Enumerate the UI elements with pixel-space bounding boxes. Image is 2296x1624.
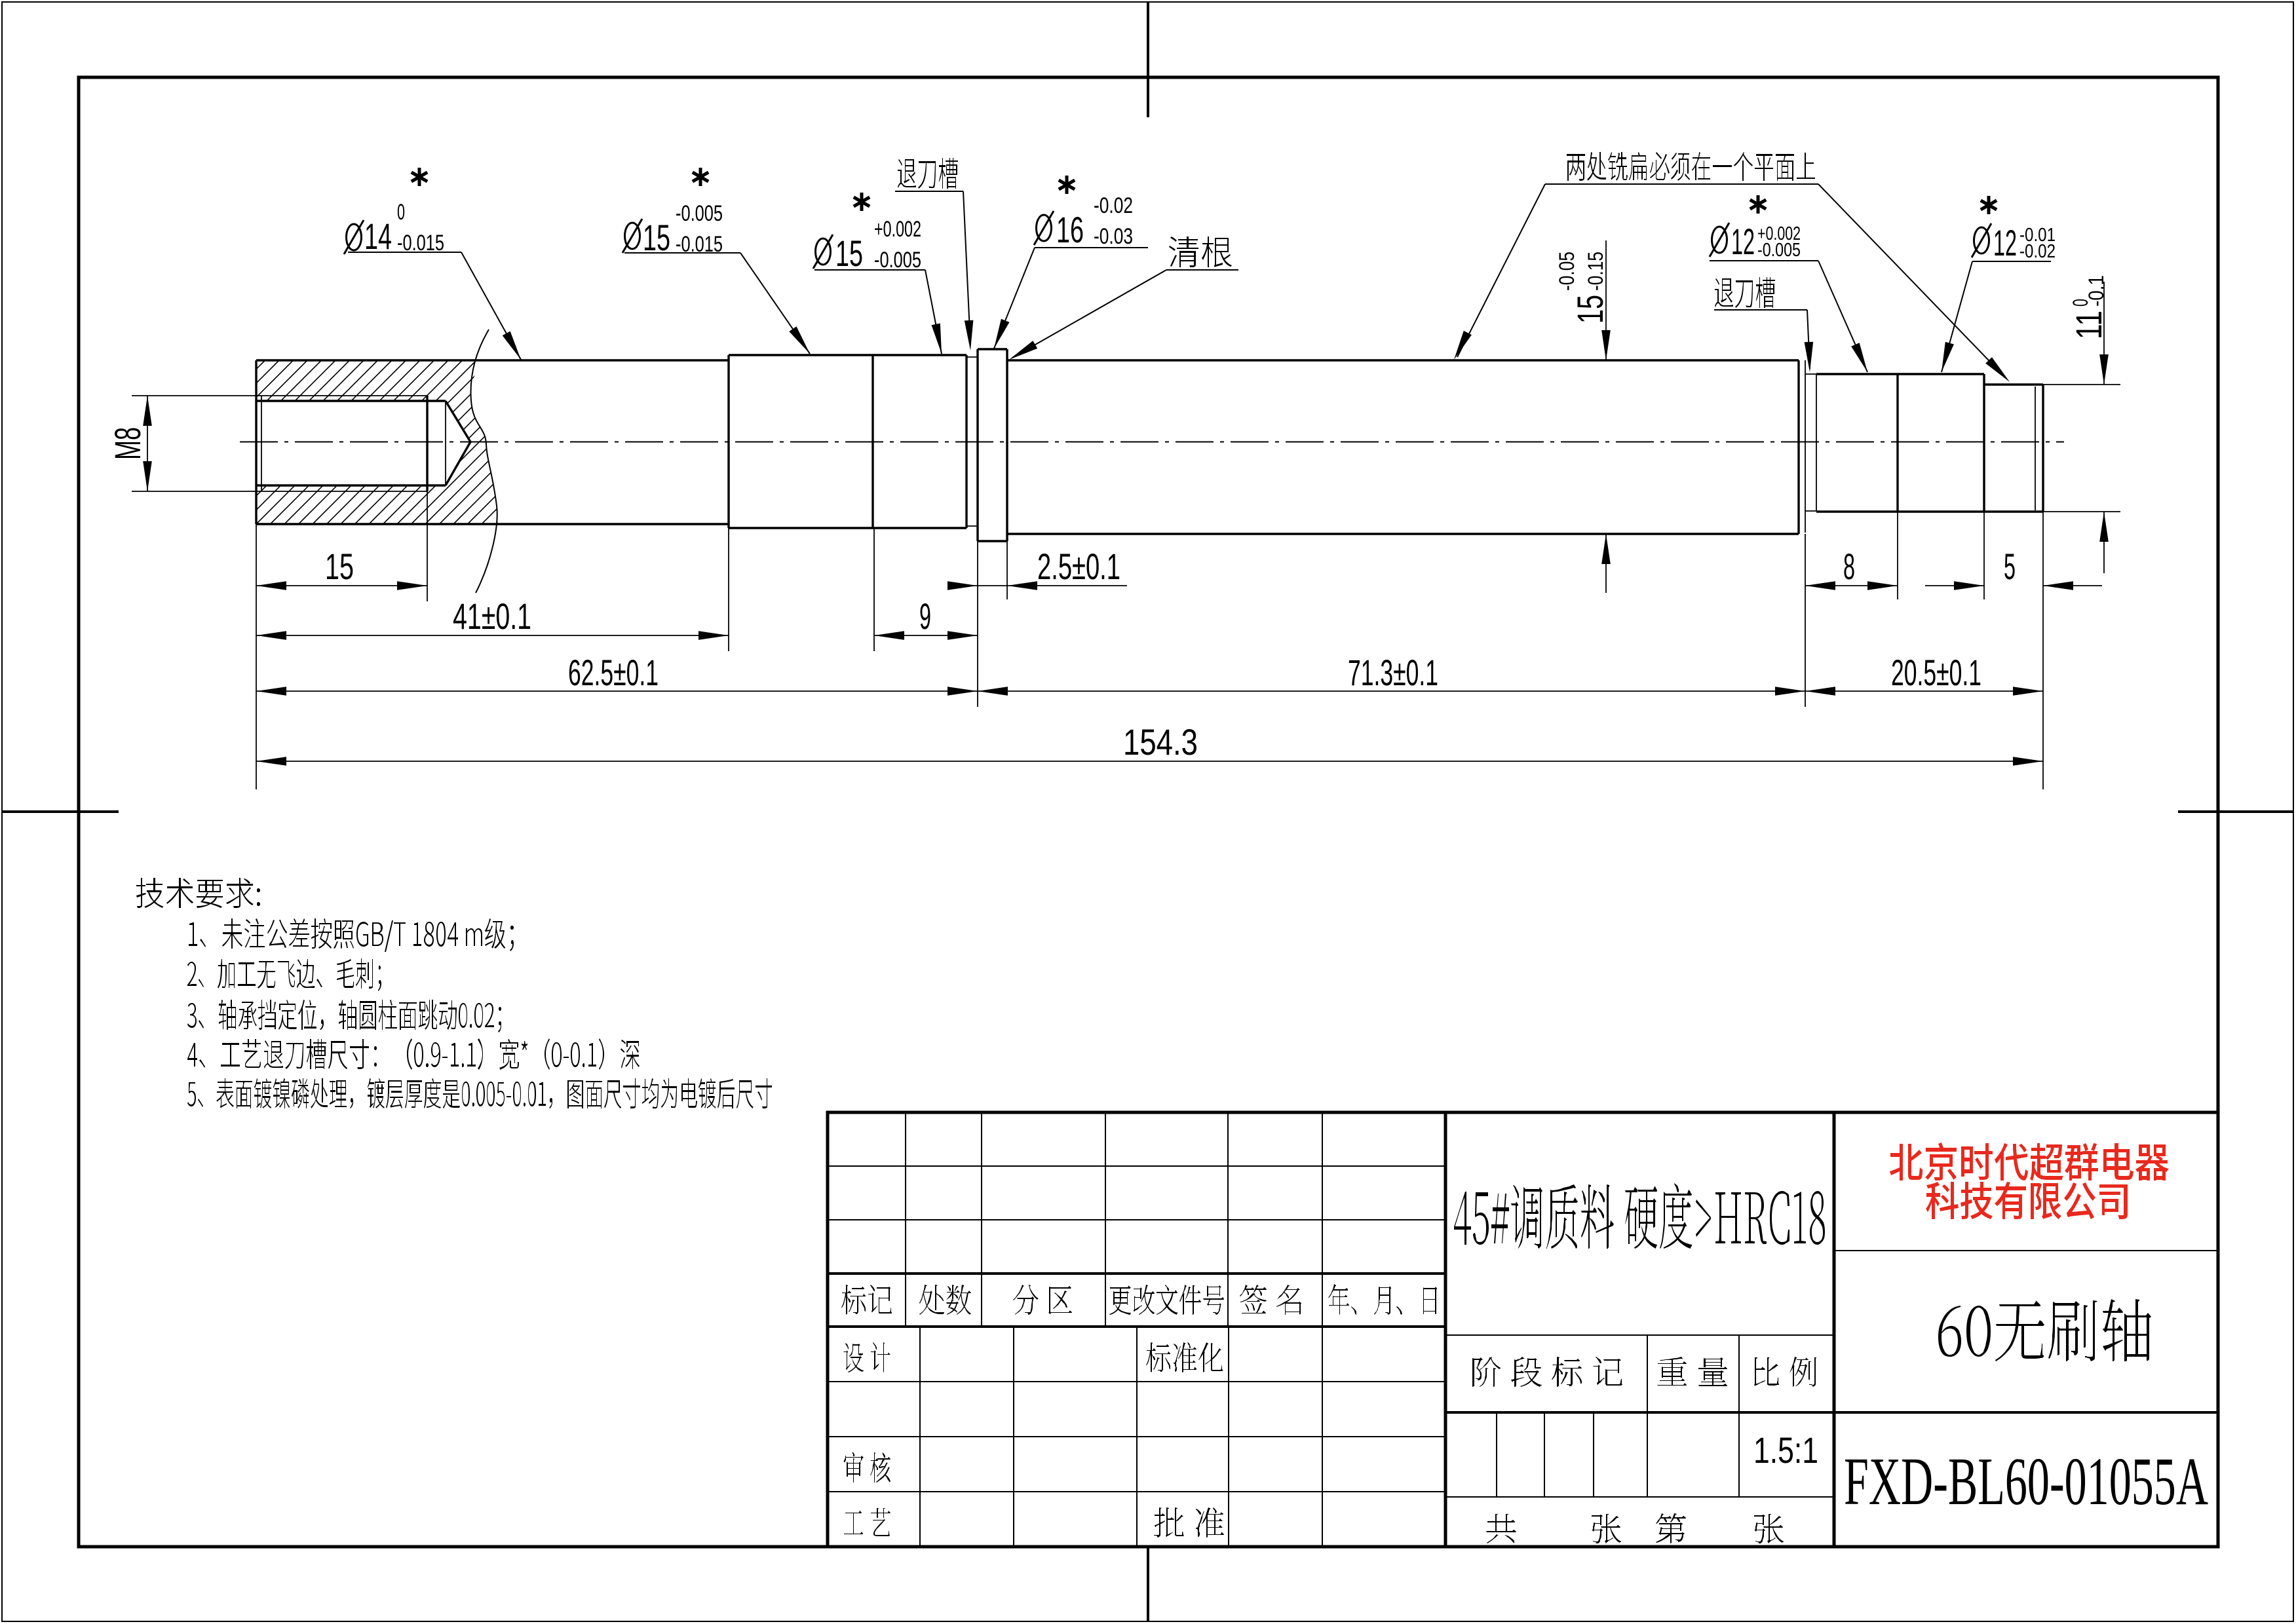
svg-text:M8: M8 [107,427,148,460]
svg-text:-0.1: -0.1 [2084,275,2108,307]
svg-text:15: 15 [1569,295,1611,324]
svg-text:-0.02: -0.02 [1094,193,1133,218]
svg-text:71.3±0.1: 71.3±0.1 [1348,652,1438,693]
svg-text:FXD-BL60-01055A: FXD-BL60-01055A [1844,1444,2208,1519]
svg-text:12: 12 [1993,222,2017,263]
svg-text:2.5±0.1: 2.5±0.1 [1037,546,1120,587]
svg-text:-0.15: -0.15 [1584,252,1607,291]
svg-text:15: 15 [835,233,863,274]
svg-text:8: 8 [1843,546,1855,587]
svg-text:-0.03: -0.03 [1094,224,1133,249]
svg-text:14: 14 [364,216,392,257]
svg-text:5: 5 [2004,546,2016,587]
svg-text:-0.005: -0.005 [874,248,921,273]
svg-text:+0.002: +0.002 [874,217,921,242]
svg-text:1.5:1: 1.5:1 [1753,1429,1818,1471]
svg-text:11: 11 [2068,311,2109,339]
svg-text:0: 0 [397,200,405,225]
svg-text:41±0.1: 41±0.1 [453,595,531,637]
svg-text:62.5±0.1: 62.5±0.1 [568,652,659,693]
svg-text:-0.005: -0.005 [1757,240,1801,261]
svg-text:16: 16 [1056,209,1084,250]
svg-text:-0.005: -0.005 [676,201,723,226]
svg-text:15: 15 [325,546,354,587]
svg-text:20.5±0.1: 20.5±0.1 [1891,652,1981,693]
svg-text:12: 12 [1731,221,1755,262]
svg-text:-0.05: -0.05 [1555,252,1578,291]
svg-text:9: 9 [919,595,931,637]
svg-text:154.3: 154.3 [1123,721,1198,763]
svg-text:-0.02: -0.02 [2019,241,2056,262]
svg-text:15: 15 [643,217,670,258]
